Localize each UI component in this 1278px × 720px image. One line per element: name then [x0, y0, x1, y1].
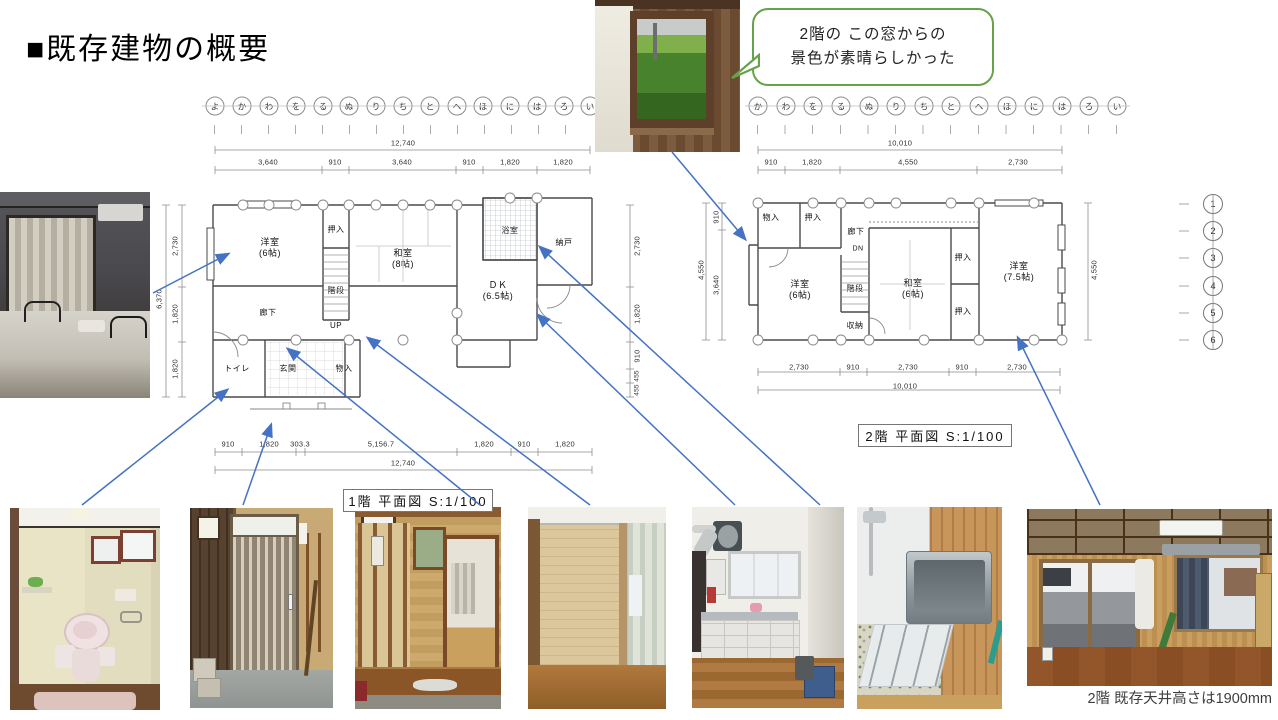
dim-label: 455 — [634, 384, 641, 395]
grid-letter: ほ — [998, 97, 1017, 116]
dim-label: 4,550 — [898, 158, 918, 167]
ceiling-height-caption: 2階 既存天井高さは1900mm — [1027, 687, 1272, 708]
dim-label: 10,010 — [893, 382, 917, 391]
genkan-tile — [267, 342, 343, 395]
callout-line2: 景色が素晴らしかった — [790, 47, 955, 71]
red-item — [355, 681, 367, 701]
dim-label: 910 — [955, 363, 968, 372]
room-label-oshiire-2f: 押入 — [805, 213, 822, 223]
slat-partition — [358, 523, 411, 681]
stainless-tub — [906, 551, 992, 624]
bed-headboard — [24, 301, 61, 322]
room-label-dn-2f: DN — [852, 246, 863, 255]
room-label-yoshitsu75-2f: 洋室 (7.5帖) — [1004, 261, 1035, 284]
grid-letter: と — [942, 97, 961, 116]
dim-label: 1,820 — [259, 440, 279, 449]
dim-label: 303.3 — [290, 440, 310, 449]
grid-letter: ほ — [474, 97, 493, 116]
grid-letter: へ — [970, 97, 989, 116]
counter-top — [701, 612, 798, 620]
dim-label: 12,740 — [391, 459, 415, 468]
dim-label: 2,730 — [1007, 363, 1027, 372]
grid-letter: か — [233, 97, 252, 116]
window-sill — [630, 128, 714, 136]
room-label-washitsu-1f: 和室 (8帖) — [392, 248, 414, 271]
sliding-door — [230, 514, 299, 680]
toilet-bowl — [72, 649, 101, 681]
room-label-monoire-2f: 物入 — [763, 213, 780, 223]
right-window — [1174, 555, 1263, 632]
dim-label: 12,740 — [391, 139, 415, 148]
shoji-screen — [595, 6, 633, 152]
room-label-genkan-1f: 玄関 — [280, 364, 297, 374]
callout-line1: 2階の この窓からの — [800, 23, 947, 47]
page-title: ■既存建物の概要 — [26, 24, 270, 68]
dim-label: 5,156.7 — [368, 440, 394, 449]
room-label-oshiire-r2-2f: 押入 — [955, 307, 972, 317]
dim-label: 910 — [517, 440, 530, 449]
glass-cabinet — [1255, 573, 1272, 656]
dim-label: 455 — [634, 370, 641, 381]
shelf — [22, 587, 52, 593]
plan1f-doors — [213, 285, 570, 409]
grid-letter: に — [501, 97, 520, 116]
room-label-monoire-1f: 物入 — [336, 364, 353, 374]
room-label-nando-1f: 納戸 — [556, 238, 573, 248]
grid-letter: と — [421, 97, 440, 116]
room-label-toire-1f: トイレ — [224, 364, 250, 374]
kitchen-window — [728, 551, 801, 599]
grid-letter: い — [1108, 97, 1127, 116]
grid-tick-row — [757, 125, 1120, 134]
outlet — [1042, 647, 1054, 661]
grid-letter: わ — [260, 97, 279, 116]
poster — [371, 536, 385, 566]
grid-letter: を — [804, 97, 823, 116]
photo-hallway — [528, 507, 666, 709]
fluorescent-light — [1159, 520, 1222, 536]
tile-floor — [355, 695, 501, 709]
dim-label: 2,730 — [633, 236, 642, 256]
dim-label: 3,640 — [712, 275, 721, 295]
towel — [78, 320, 105, 332]
grid-letter: は — [528, 97, 547, 116]
shower-fixture — [863, 511, 886, 523]
photo-kitchen — [692, 507, 844, 708]
grid-letter: ぬ — [860, 97, 879, 116]
grid-letter: を — [287, 97, 306, 116]
notice — [298, 523, 307, 544]
framed-picture — [413, 527, 445, 569]
dim-label: 1,820 — [500, 158, 520, 167]
grid-letter: る — [832, 97, 851, 116]
room-label-oshiire-r1-2f: 押入 — [955, 253, 972, 263]
dim-label: 2,730 — [898, 363, 918, 372]
pole — [653, 23, 656, 60]
grid-letter: よ — [206, 97, 225, 116]
plan1f-caption: 1階 平面図 S:1/100 — [343, 489, 493, 512]
photo-window-view — [595, 0, 740, 152]
ceiling-lamp — [70, 508, 91, 520]
dim-label: 1,820 — [553, 158, 573, 167]
cloth — [413, 679, 457, 691]
grid-number: 6 — [1203, 330, 1223, 350]
photo-room-2f — [1027, 509, 1272, 686]
grid-letter: ち — [394, 97, 413, 116]
stair-wall — [808, 507, 844, 660]
plan1f-stairs — [323, 255, 349, 311]
room-label-rouka-1f: 廊下 — [260, 308, 277, 318]
room-label-shuno-2f: 収納 — [847, 321, 864, 331]
mat — [34, 692, 136, 710]
air-conditioner — [98, 204, 143, 220]
dim-label: 1,820 — [474, 440, 494, 449]
dim-label: 3,640 — [258, 158, 278, 167]
towel-ring — [120, 611, 142, 623]
dim-label: 910 — [221, 440, 234, 449]
tub-inner — [914, 560, 985, 609]
window-greenery — [637, 19, 706, 119]
duckboard-mat — [858, 624, 954, 687]
door-handle — [288, 594, 293, 610]
room-label-yoshitsu-1f: 洋室 (6帖) — [259, 237, 281, 260]
dim-label: 6,370 — [155, 289, 164, 309]
window-frame — [630, 11, 714, 136]
grid-letter: へ — [448, 97, 467, 116]
floor — [1027, 647, 1272, 686]
dim-label: 910 — [846, 363, 859, 372]
wood-floor — [528, 665, 666, 709]
small-window — [120, 530, 156, 562]
inner-room — [451, 563, 475, 615]
wood-rim — [857, 695, 1002, 709]
cabinets — [701, 620, 800, 660]
fan-blade — [718, 525, 738, 548]
small-window — [91, 536, 121, 564]
clothes-rail — [1162, 544, 1260, 555]
grid-letter: に — [1025, 97, 1044, 116]
plan1f-walls — [207, 198, 592, 397]
grid-letter: ろ — [1080, 97, 1099, 116]
grid-letter: は — [1053, 97, 1072, 116]
left-window — [1039, 559, 1140, 652]
bed-footboard — [110, 316, 147, 339]
paper-holder — [115, 589, 136, 601]
doorway — [443, 535, 499, 672]
plan2f-stairs — [841, 262, 869, 304]
callout-bubble: 2階の この窓からの 景色が素晴らしかった — [752, 8, 994, 86]
dim-label: 910 — [328, 158, 341, 167]
wall-hook — [572, 543, 580, 563]
neighbor-house — [1224, 568, 1257, 596]
photo-bath — [857, 507, 1002, 709]
slide: ■既存建物の概要 よ か わ を る ぬ り ち と へ ほ に は ろ い か… — [0, 0, 1278, 720]
transom — [233, 517, 296, 537]
room-label-oshiire-1f: 押入 — [328, 225, 345, 235]
photo-toilet — [10, 508, 160, 710]
room-label-yoshitsu6-2f: 洋室 (6帖) — [789, 279, 811, 302]
dim-label: 910 — [462, 158, 475, 167]
grid-number: 2 — [1203, 221, 1223, 241]
trash-bin — [795, 656, 813, 680]
dim-label: 910 — [712, 210, 721, 223]
room-label-washitsu6-2f: 和室 (6帖) — [902, 278, 924, 301]
dim-label: 1,820 — [555, 440, 575, 449]
dark-curtains — [1177, 558, 1209, 629]
dim-label: 3,640 — [392, 158, 412, 167]
mullion — [1088, 563, 1092, 648]
room-label-dk-1f: ＤＫ (6.5帖) — [483, 280, 514, 303]
callout-tail — [730, 52, 760, 80]
dim-label: 1,820 — [802, 158, 822, 167]
dim-label: 10,010 — [888, 139, 912, 148]
grid-letter: ち — [915, 97, 934, 116]
grid-letter: る — [314, 97, 333, 116]
grid-letter: ろ — [555, 97, 574, 116]
room-label-yokushitsu-1f: 浴室 — [502, 226, 519, 236]
dim-label: 1,820 — [171, 359, 180, 379]
slats — [358, 523, 411, 681]
dim-label: 1,820 — [633, 304, 642, 324]
room-label-kaidan-2f: 階段 — [847, 284, 864, 294]
grid-letter: り — [367, 97, 386, 116]
grid-number: 3 — [1203, 248, 1223, 268]
red-bottle — [707, 587, 716, 603]
flowers — [28, 577, 43, 587]
plan1f-column-marks — [238, 193, 542, 345]
plan2f-caption: 2階 平面図 S:1/100 — [858, 424, 1012, 447]
grid-number: 4 — [1203, 276, 1223, 296]
grid-letter: ぬ — [340, 97, 359, 116]
dim-label: 2,730 — [1008, 158, 1028, 167]
photo-entrance — [190, 508, 333, 708]
dim-label: 4,550 — [697, 260, 706, 280]
leader-arrows — [82, 152, 1100, 505]
photo-genkan — [355, 507, 501, 709]
room-label-rouka-2f: 廊下 — [848, 227, 865, 237]
grid-letter: り — [887, 97, 906, 116]
pink-item — [750, 603, 762, 611]
dim-label: 2,730 — [171, 236, 180, 256]
grid-number: 1 — [1203, 194, 1223, 214]
room-label-up-1f: UP — [330, 321, 342, 331]
dim-label: 2,730 — [789, 363, 809, 372]
grid-tick-row — [214, 125, 592, 134]
grid-number: 5 — [1203, 303, 1223, 323]
room-label-kaidan-1f: 階段 — [328, 286, 345, 296]
lace-curtain — [1135, 559, 1155, 630]
grid-letter: わ — [777, 97, 796, 116]
cinder-block — [197, 678, 220, 698]
dim-label: 910 — [764, 158, 777, 167]
porch-lamp — [197, 516, 220, 540]
plan1f-tatami — [356, 210, 451, 282]
far-window — [629, 575, 641, 616]
dim-label: 4,550 — [1090, 260, 1099, 280]
photo-bedroom — [0, 192, 150, 398]
neighbor-house — [1043, 568, 1071, 587]
dim-label: 910 — [633, 349, 642, 362]
dim-label: 1,820 — [171, 304, 180, 324]
grid-letter: か — [749, 97, 768, 116]
dimension-lines — [162, 146, 1213, 474]
